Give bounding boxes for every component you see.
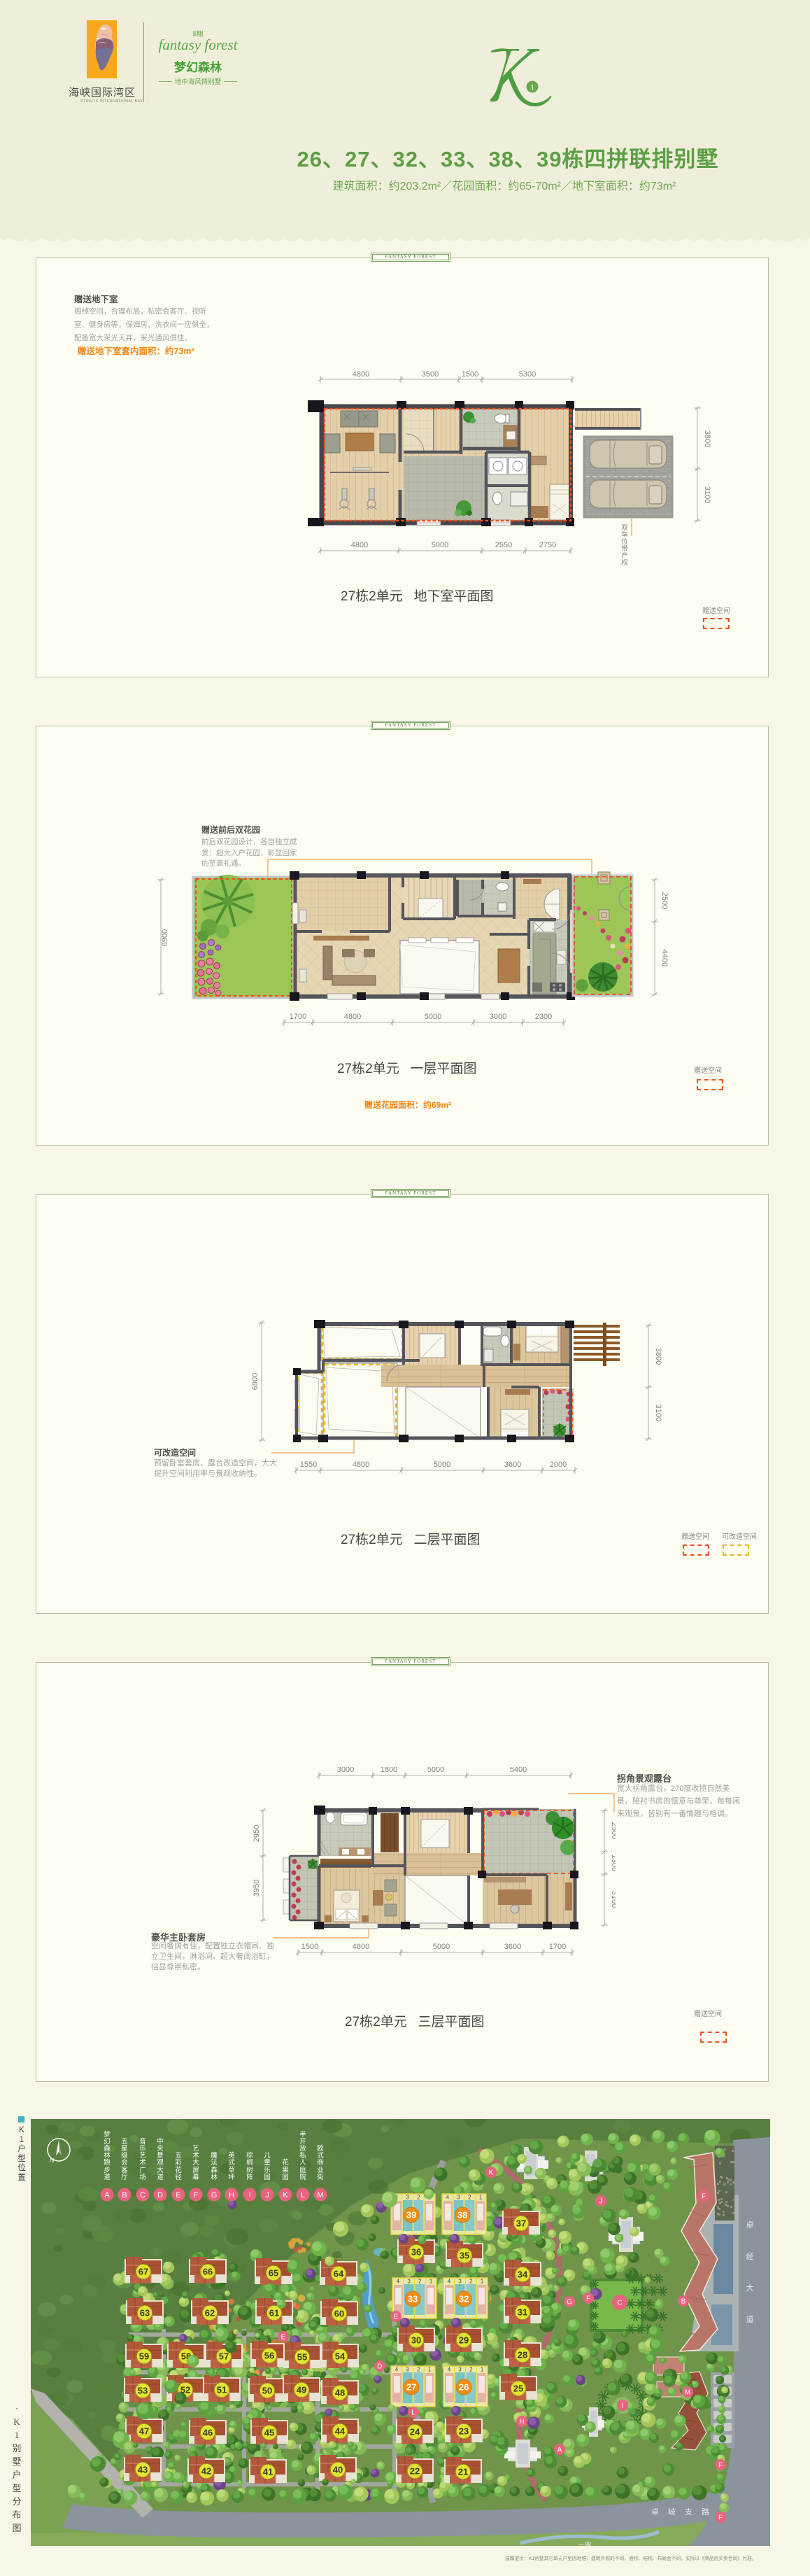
svg-text:63: 63 [140, 2308, 150, 2318]
svg-text:34: 34 [518, 2269, 528, 2280]
svg-text:1550: 1550 [300, 1461, 317, 1469]
svg-text:49: 49 [297, 2385, 306, 2395]
svg-text:M: M [317, 2191, 323, 2200]
svg-text:人: 人 [299, 2159, 306, 2167]
svg-text:1300: 1300 [610, 1854, 616, 1871]
svg-text:D: D [377, 2363, 382, 2371]
svg-text:1500: 1500 [301, 1943, 318, 1951]
svg-text:园: 园 [282, 2174, 289, 2181]
svg-text:55: 55 [297, 2352, 307, 2363]
svg-text:B: B [681, 2298, 686, 2306]
svg-text:阵: 阵 [246, 2173, 253, 2181]
svg-text:G: G [567, 2299, 572, 2307]
svg-text:3600: 3600 [504, 1461, 521, 1469]
svg-text:37: 37 [516, 2218, 526, 2229]
svg-text:4: 4 [446, 2195, 450, 2201]
svg-text:1700: 1700 [290, 1013, 306, 1021]
svg-text:33: 33 [408, 2294, 418, 2304]
svg-text:50: 50 [262, 2386, 272, 2396]
svg-text:跑: 跑 [104, 2158, 111, 2167]
svg-text:2: 2 [469, 2279, 473, 2285]
svg-text:观: 观 [157, 2159, 164, 2167]
svg-text:3: 3 [407, 2279, 411, 2285]
svg-text:25: 25 [513, 2384, 523, 2394]
svg-text:A: A [557, 2447, 562, 2454]
svg-text:2: 2 [417, 2367, 420, 2373]
svg-text:5000: 5000 [425, 1013, 441, 1021]
svg-text:59: 59 [139, 2351, 149, 2362]
svg-text:3: 3 [457, 2195, 460, 2201]
svg-text:F: F [718, 2514, 723, 2522]
svg-text:式: 式 [228, 2158, 235, 2167]
svg-text:经: 经 [746, 2252, 754, 2261]
svg-text:45: 45 [264, 2428, 274, 2438]
svg-text:大: 大 [746, 2283, 754, 2293]
svg-text:51: 51 [217, 2385, 227, 2395]
svg-text:65: 65 [269, 2268, 278, 2279]
svg-text:56: 56 [264, 2351, 274, 2361]
svg-text:2: 2 [468, 2195, 471, 2201]
svg-text:4: 4 [448, 2279, 451, 2285]
svg-text:L: L [411, 2409, 415, 2417]
svg-text:1: 1 [429, 2279, 433, 2285]
svg-text:3: 3 [458, 2367, 462, 2373]
svg-text:67: 67 [138, 2267, 148, 2277]
svg-text:2550: 2550 [495, 541, 512, 549]
svg-text:28: 28 [518, 2350, 527, 2360]
svg-text:6900: 6900 [161, 929, 169, 946]
svg-text:坪: 坪 [228, 2173, 235, 2181]
svg-text:幕: 幕 [192, 2173, 199, 2181]
svg-text:5400: 5400 [510, 1767, 527, 1774]
svg-text:26: 26 [459, 2382, 469, 2393]
svg-text:4: 4 [448, 2367, 451, 2373]
svg-text:道: 道 [746, 2314, 754, 2324]
svg-text:术: 术 [139, 2158, 146, 2167]
svg-text:I: I [622, 2402, 624, 2410]
svg-text:4800: 4800 [344, 1013, 361, 1021]
svg-text:F: F [586, 2295, 590, 2303]
svg-text:1: 1 [481, 2367, 484, 2373]
svg-text:2500: 2500 [660, 892, 668, 909]
svg-text:44: 44 [335, 2426, 346, 2437]
svg-text:F: F [702, 2193, 706, 2201]
svg-text:径: 径 [175, 2173, 182, 2181]
svg-text:47: 47 [139, 2426, 149, 2437]
svg-text:1: 1 [530, 83, 534, 92]
svg-text:H: H [229, 2191, 234, 2200]
svg-text:2750: 2750 [539, 541, 556, 549]
svg-text:林: 林 [211, 2173, 218, 2181]
svg-text:J: J [599, 2198, 603, 2206]
svg-text:会: 会 [121, 2158, 128, 2167]
svg-text:3: 3 [406, 2367, 409, 2373]
svg-text:62: 62 [205, 2308, 215, 2318]
svg-text:64: 64 [334, 2269, 344, 2279]
svg-text:C: C [140, 2191, 145, 2200]
svg-text:道: 道 [104, 2173, 111, 2181]
svg-text:A: A [104, 2191, 110, 2200]
svg-text:61: 61 [269, 2308, 279, 2318]
svg-text:24: 24 [410, 2427, 420, 2437]
svg-text:E: E [394, 2314, 399, 2321]
svg-text:4: 4 [395, 2367, 399, 2373]
svg-text:E: E [176, 2191, 180, 2200]
svg-text:3000: 3000 [337, 1767, 354, 1774]
svg-text:场: 场 [139, 2174, 146, 2181]
svg-text:4: 4 [397, 2279, 400, 2285]
svg-text:60: 60 [334, 2309, 344, 2319]
svg-text:花: 花 [282, 2158, 289, 2167]
svg-text:榈: 榈 [246, 2158, 253, 2167]
svg-text:园: 园 [264, 2174, 271, 2181]
svg-text:D: D [157, 2191, 163, 2200]
svg-text:商: 商 [317, 2158, 324, 2167]
svg-text:1700: 1700 [549, 1943, 566, 1951]
svg-text:53: 53 [138, 2386, 148, 2396]
svg-text:彩: 彩 [175, 2159, 182, 2167]
svg-text:卓: 卓 [746, 2220, 754, 2230]
svg-text:5000: 5000 [434, 1461, 450, 1469]
svg-text:道: 道 [157, 2173, 164, 2181]
svg-text:36: 36 [411, 2247, 421, 2258]
svg-text:4800: 4800 [351, 541, 368, 549]
svg-text:23: 23 [459, 2426, 469, 2437]
svg-text:5000: 5000 [433, 1943, 450, 1951]
svg-text:3000: 3000 [490, 1013, 506, 1021]
svg-text:C: C [617, 2300, 622, 2307]
svg-text:K: K [489, 2169, 494, 2177]
svg-text:M: M [685, 2389, 690, 2397]
svg-text:2950: 2950 [253, 1825, 261, 1842]
svg-text:3: 3 [458, 2279, 462, 2285]
svg-text:K: K [283, 2191, 288, 2200]
svg-text:1: 1 [428, 2367, 432, 2373]
svg-text:66: 66 [203, 2267, 213, 2277]
svg-text:一期: 一期 [578, 2542, 591, 2546]
svg-text:法: 法 [211, 2158, 218, 2167]
svg-text:4400: 4400 [660, 950, 668, 966]
svg-text:40: 40 [333, 2465, 343, 2475]
svg-text:31: 31 [518, 2307, 527, 2318]
svg-text:院: 院 [299, 2173, 306, 2181]
svg-text:21: 21 [458, 2467, 468, 2477]
svg-text:J: J [265, 2191, 269, 2200]
svg-text:4800: 4800 [353, 1461, 369, 1469]
svg-text:F: F [718, 2462, 723, 2470]
svg-text:3600: 3600 [504, 1943, 521, 1951]
svg-text:I: I [248, 2191, 250, 2200]
svg-text:42: 42 [201, 2466, 211, 2477]
svg-text:1: 1 [479, 2195, 483, 2201]
svg-text:1: 1 [481, 2279, 484, 2285]
svg-text:30: 30 [411, 2335, 421, 2346]
svg-text:57: 57 [219, 2351, 229, 2362]
svg-text:童: 童 [264, 2158, 271, 2167]
svg-text:39: 39 [406, 2210, 416, 2220]
svg-text:1800: 1800 [381, 1767, 397, 1774]
svg-text:5000: 5000 [427, 1767, 444, 1774]
svg-text:35: 35 [460, 2251, 469, 2261]
svg-text:3: 3 [406, 2195, 409, 2201]
svg-text:4800: 4800 [353, 370, 369, 379]
svg-text:3500: 3500 [422, 370, 439, 379]
svg-text:32: 32 [459, 2294, 469, 2304]
svg-text:1500: 1500 [462, 370, 478, 379]
svg-text:43: 43 [138, 2465, 148, 2475]
svg-text:权: 权 [621, 558, 628, 567]
svg-text:27: 27 [406, 2382, 416, 2393]
svg-text:48: 48 [335, 2388, 345, 2398]
svg-text:2: 2 [418, 2279, 422, 2285]
svg-text:38: 38 [457, 2210, 467, 2220]
svg-text:2: 2 [469, 2367, 473, 2373]
svg-text:54: 54 [335, 2351, 346, 2362]
svg-text:3100: 3100 [610, 1891, 616, 1908]
svg-text:6900: 6900 [252, 1373, 260, 1390]
svg-text:大: 大 [192, 2158, 199, 2167]
svg-text:街: 街 [317, 2173, 324, 2181]
svg-text:卓岐支路: 卓岐支路 [651, 2507, 718, 2517]
svg-text:2300: 2300 [535, 1013, 552, 1021]
svg-text:2: 2 [417, 2195, 420, 2201]
svg-text:H: H [519, 2419, 524, 2426]
svg-text:41: 41 [263, 2467, 273, 2477]
svg-text:F: F [194, 2191, 199, 2200]
svg-text:N: N [50, 2157, 55, 2164]
svg-text:2000: 2000 [550, 1461, 567, 1469]
svg-text:3800: 3800 [654, 1348, 662, 1365]
svg-text:5000: 5000 [432, 541, 448, 549]
svg-text:4800: 4800 [353, 1943, 369, 1951]
svg-text:3100: 3100 [703, 486, 711, 503]
svg-text:E: E [281, 2334, 286, 2342]
svg-text:B: B [122, 2191, 127, 2200]
svg-text:22: 22 [410, 2466, 420, 2477]
svg-text:G: G [211, 2191, 218, 2200]
svg-text:3100: 3100 [654, 1405, 662, 1421]
svg-text:L: L [301, 2191, 305, 2200]
svg-text:3800: 3800 [703, 430, 711, 447]
svg-text:5300: 5300 [519, 370, 536, 379]
svg-text:46: 46 [203, 2428, 213, 2438]
svg-text:3950: 3950 [253, 1880, 261, 1896]
svg-text:29: 29 [459, 2335, 469, 2346]
svg-text:厅: 厅 [121, 2174, 128, 2181]
svg-text:2500: 2500 [610, 1822, 616, 1839]
